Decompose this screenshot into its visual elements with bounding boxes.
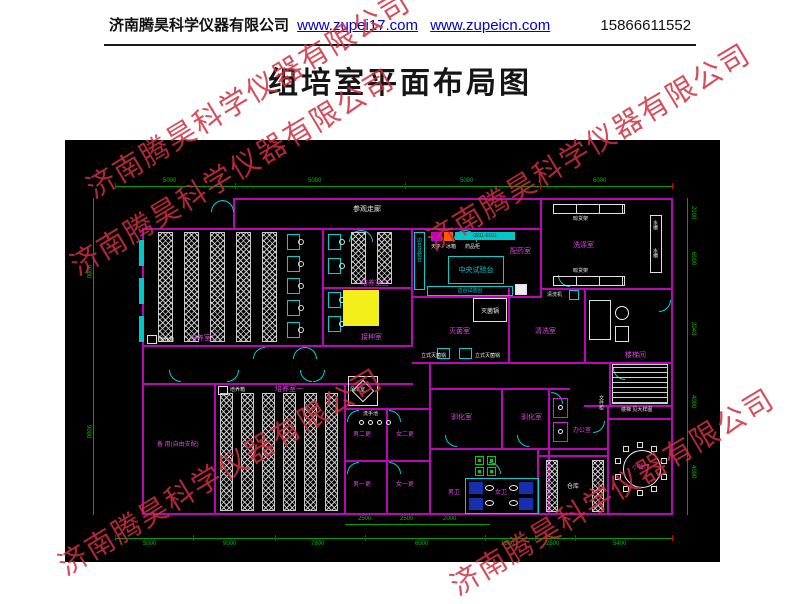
clean-bench xyxy=(328,316,341,332)
door-icon xyxy=(227,370,239,382)
storage-rack xyxy=(546,460,558,512)
central-bench: 中央试验台 xyxy=(448,256,504,284)
door-icon xyxy=(389,410,401,422)
floorplan-canvas: 5000 5000 5000 6000 9000 9000 2100 6000 … xyxy=(65,140,720,562)
room-label-qingxi: 清洗室 xyxy=(535,328,556,336)
wall-v280 xyxy=(344,383,346,515)
dim-bottom-2: 9000 xyxy=(223,541,236,547)
room-label-nan2: 男二更 xyxy=(353,432,371,439)
culture-rack xyxy=(262,393,275,511)
autoclave-box: 灭菌锅 xyxy=(473,298,507,322)
dim-top-1: 5000 xyxy=(163,178,176,184)
wall-dining-top xyxy=(607,418,673,420)
room-label-jz: 接种室 xyxy=(361,334,382,342)
dim-sub-1: 2500 xyxy=(358,516,371,522)
side-bench-label: 边台试验台 xyxy=(416,237,422,262)
door-icon xyxy=(305,347,317,359)
door-icon xyxy=(593,421,605,433)
culture-rack xyxy=(377,232,392,284)
legend-box-orange xyxy=(444,232,453,241)
air-shower-label: 风淋室 xyxy=(350,387,365,393)
page-title: 组培室平面布局图 xyxy=(0,58,800,102)
wall-top xyxy=(233,198,673,200)
door-icon xyxy=(169,370,181,382)
legend-code-bar: 0911-0101 xyxy=(455,232,515,240)
dim-right-4: 4000 xyxy=(690,395,696,408)
toilet-stall xyxy=(519,482,533,494)
dim-sub-3: 2000 xyxy=(443,516,456,522)
wash-basin-label: 洗手池 xyxy=(363,411,378,417)
door-icon xyxy=(517,435,529,447)
clean-bench xyxy=(328,234,341,250)
clean-bench xyxy=(287,278,300,294)
clean-bench xyxy=(287,256,300,272)
window-icon xyxy=(139,316,144,342)
fridge-label: 冰箱 xyxy=(446,244,456,250)
wall-corridor-cap xyxy=(233,198,235,228)
stair-note: 楼梯 见大样图 xyxy=(621,407,652,413)
toilet-icon xyxy=(485,500,494,506)
fixture-icon xyxy=(487,467,496,476)
dim-right-3: 2043 xyxy=(690,322,696,335)
file-cabinet-label: 文件柜 xyxy=(598,395,604,410)
room-label-bangong: 办公室 xyxy=(573,428,591,435)
sink-label: 水槽 xyxy=(652,248,658,258)
wall-v150 xyxy=(214,383,216,515)
room-label-xunhua-1: 驯化室 xyxy=(451,414,472,422)
door-icon xyxy=(347,462,359,474)
legend-box-magenta xyxy=(431,232,442,241)
room-label-py2: 培养室二 xyxy=(190,335,218,343)
basin-icon xyxy=(377,420,382,425)
wall-stair-left xyxy=(609,362,611,407)
room-label-nanwei: 男卫 xyxy=(448,490,460,497)
room-label-xidi: 洗涤室 xyxy=(573,242,594,250)
washer-label: 清洗机 xyxy=(547,292,562,298)
door-icon xyxy=(389,462,401,474)
door-icon xyxy=(347,410,359,422)
corridor-label: 参观走廊 xyxy=(353,206,381,214)
dim-right-2: 6000 xyxy=(690,252,696,265)
wall-v365 xyxy=(429,362,431,515)
dim-line-top xyxy=(115,186,673,187)
hvac-part xyxy=(615,306,629,320)
hvac-unit xyxy=(589,300,611,340)
page-header: 济南腾昊科学仪器有限公司 www.zupei17.com www.zupeicn… xyxy=(0,14,800,35)
door-icon xyxy=(445,435,457,447)
room-label-canting: 小餐厅 xyxy=(632,465,650,472)
dim-line-sub xyxy=(345,524,490,525)
drying-rack-label: 晾货架 xyxy=(573,216,588,222)
dim-bottom-4: 6000 xyxy=(415,541,428,547)
company-name: 济南腾昊科学仪器有限公司 xyxy=(109,17,289,34)
culture-rack xyxy=(210,232,225,342)
dim-right-5: 4000 xyxy=(690,465,696,478)
wall-lab-wash xyxy=(540,198,542,298)
desk-icon xyxy=(553,398,568,418)
drying-rack-label: 晾货架 xyxy=(573,268,588,274)
dim-sub-2: 2500 xyxy=(400,516,413,522)
balance-label: 天平 xyxy=(431,244,441,250)
wall-left xyxy=(142,228,144,515)
wall-wash-bottom xyxy=(540,288,673,290)
wall-right xyxy=(671,198,673,515)
highlight-workbench xyxy=(343,290,379,326)
clean-bench xyxy=(287,234,300,250)
dim-top-2: 5000 xyxy=(308,178,321,184)
culture-rack xyxy=(220,393,233,511)
culture-rack xyxy=(351,232,366,284)
dim-bottom-1: 5000 xyxy=(143,541,156,547)
culture-rack xyxy=(158,232,173,342)
incubator-label: 培养箱 xyxy=(230,387,245,393)
door-icon xyxy=(300,370,312,382)
wall-v520 xyxy=(584,288,586,364)
clean-bench xyxy=(328,258,341,274)
culture-rack xyxy=(325,393,338,511)
dim-left-1: 9000 xyxy=(85,265,91,278)
toilet-icon xyxy=(485,485,494,491)
culture-rack xyxy=(304,393,317,511)
culture-rack xyxy=(184,232,199,342)
room-label-xunhua-2: 驯化室 xyxy=(521,414,542,422)
toilet-icon xyxy=(509,485,518,491)
wall-v443 xyxy=(508,288,510,364)
dim-right-1: 2100 xyxy=(690,206,696,219)
room-label-nv2: 女二更 xyxy=(396,432,414,439)
culture-rack xyxy=(283,393,296,511)
room-label-nv1: 女一更 xyxy=(396,482,414,489)
room-label-spare: 备 用(自由支配) xyxy=(157,442,199,449)
room-label-nan1: 男一更 xyxy=(353,482,371,489)
toilet-stall xyxy=(519,498,533,510)
sink-label: 水槽 xyxy=(652,220,658,230)
room-label-nvwei: 女卫 xyxy=(495,490,507,497)
cabinet-label: 药品柜 xyxy=(465,244,480,250)
dim-top-3: 5000 xyxy=(460,178,473,184)
toilet-stall xyxy=(469,482,483,494)
dim-line-bottom xyxy=(115,538,673,539)
wall-office-bottom xyxy=(548,448,609,450)
clean-bench xyxy=(287,322,300,338)
wall-corridor-bottom xyxy=(142,228,542,230)
culture-rack xyxy=(241,393,254,511)
dim-bottom-7: 5400 xyxy=(613,541,626,547)
basin-icon xyxy=(359,420,364,425)
clean-bench xyxy=(287,300,300,316)
dim-line-left xyxy=(93,198,94,515)
fixture-icon xyxy=(475,467,484,476)
incubator-icon xyxy=(147,335,157,344)
window-icon xyxy=(139,240,144,266)
desk-icon xyxy=(553,422,568,442)
door-icon xyxy=(253,347,265,359)
fixture-icon xyxy=(475,456,484,465)
link-zupeicn[interactable]: www.zupeicn.com xyxy=(430,17,550,34)
dim-line-right xyxy=(687,198,688,515)
toilet-stall xyxy=(469,498,483,510)
drying-rack xyxy=(553,276,625,286)
room-label-cangku: 仓库 xyxy=(567,484,579,491)
dim-left-2: 9000 xyxy=(85,425,91,438)
room-label-miejun: 灭菌室 xyxy=(449,328,470,336)
incubator-icon xyxy=(218,386,228,395)
drying-rack xyxy=(553,204,625,214)
staircase xyxy=(612,364,668,404)
side-bench-bottom: 边台试验台 xyxy=(427,286,513,296)
autoclave-v-label: 立式灭菌锅 xyxy=(475,353,500,359)
room-label-py3: 培养室三 xyxy=(361,280,389,288)
wall-office-right xyxy=(607,407,609,515)
culture-rack xyxy=(262,232,277,342)
phone-number: 15866611552 xyxy=(600,17,691,34)
incubator-label: 培养箱 xyxy=(159,337,174,343)
door-icon xyxy=(313,370,325,382)
storage-rack xyxy=(592,460,604,512)
hvac-part xyxy=(615,326,629,342)
culture-rack xyxy=(236,232,251,342)
wall-store-top xyxy=(537,455,609,457)
toilet-icon xyxy=(509,500,518,506)
washer-icon xyxy=(569,290,579,300)
room-label-peiyao: 配药室 xyxy=(510,248,531,256)
sterilizer-icon xyxy=(459,348,472,359)
wall-b xyxy=(142,345,413,347)
dim-bottom-3: 7800 xyxy=(311,541,324,547)
room-label-louti: 楼梯间 xyxy=(625,352,646,360)
clean-bench xyxy=(328,292,341,308)
window-icon xyxy=(139,278,144,304)
basin-icon xyxy=(386,420,391,425)
equipment-icon xyxy=(515,284,527,295)
header-divider xyxy=(104,44,696,46)
dim-top-4: 6000 xyxy=(593,178,606,184)
wall-xh-mid xyxy=(501,388,503,450)
dim-bottom-5: 1500 xyxy=(501,541,514,547)
dim-bottom-6: 2500 xyxy=(546,541,559,547)
room-label-py1: 培养室一 xyxy=(275,386,303,394)
basin-icon xyxy=(368,420,373,425)
link-zupei17[interactable]: www.zupei17.com xyxy=(297,17,418,34)
door-icon xyxy=(659,300,671,312)
fixture-icon xyxy=(487,456,496,465)
door-icon xyxy=(293,347,305,359)
autoclave-v-label: 立式灭菌锅 xyxy=(421,353,446,359)
wall-bottom xyxy=(142,513,673,515)
